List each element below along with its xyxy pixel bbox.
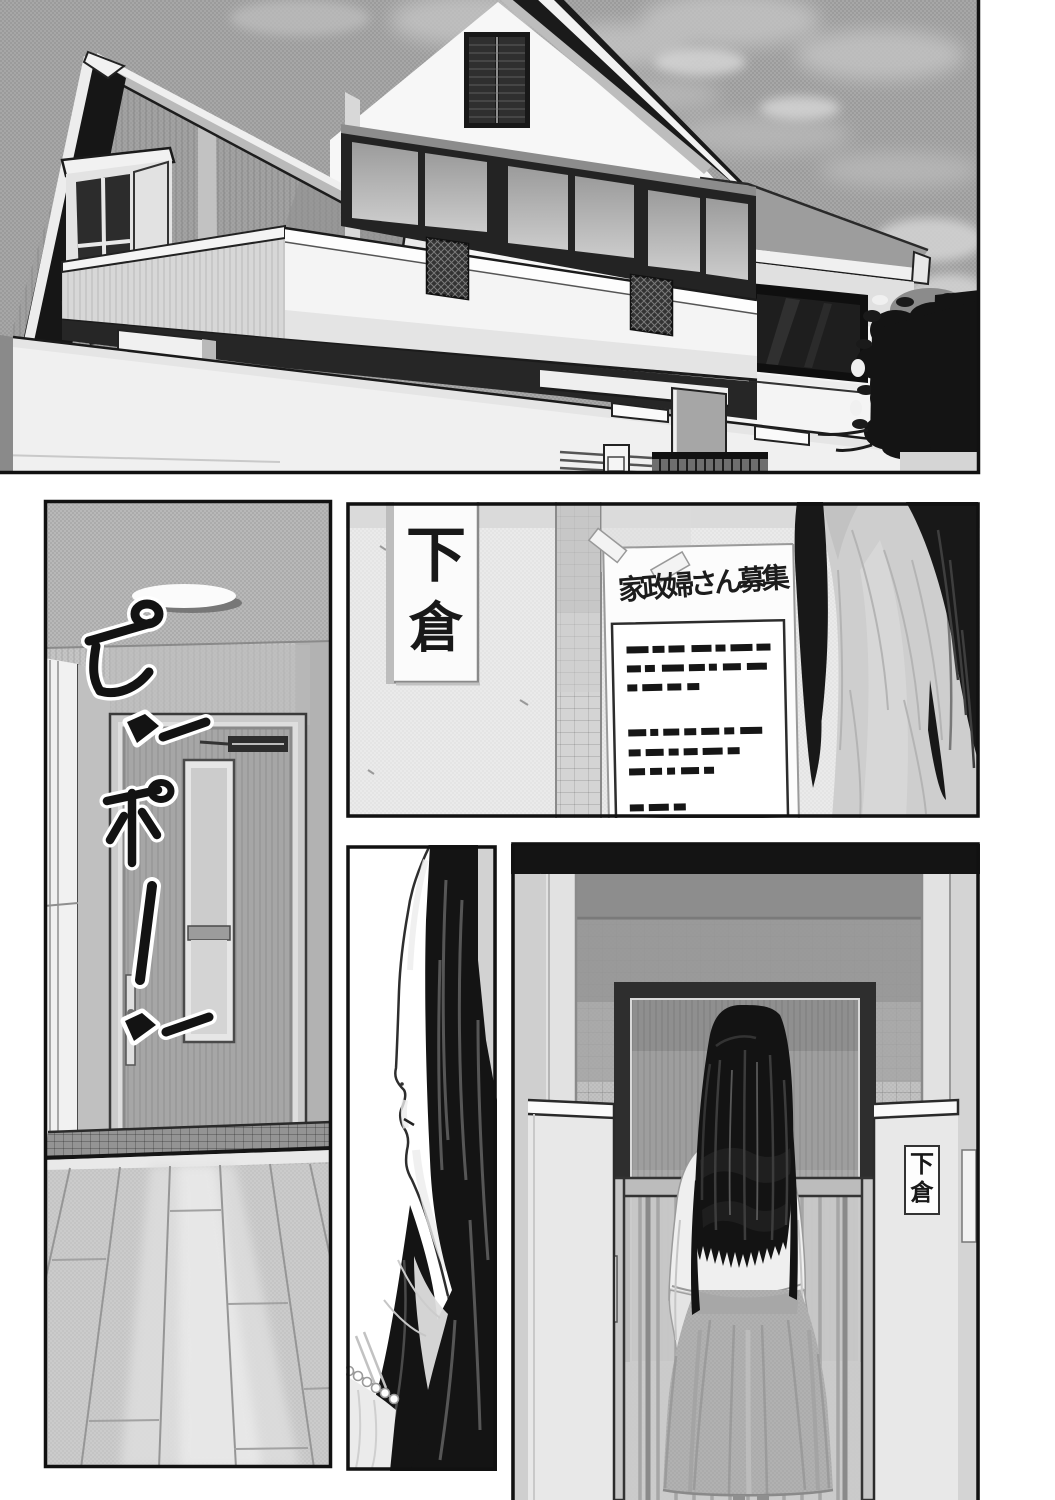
svg-text:倉: 倉 <box>910 1179 935 1205</box>
svg-text:倉: 倉 <box>408 598 463 658</box>
svg-text:下: 下 <box>406 523 466 589</box>
svg-text:下: 下 <box>910 1152 934 1178</box>
